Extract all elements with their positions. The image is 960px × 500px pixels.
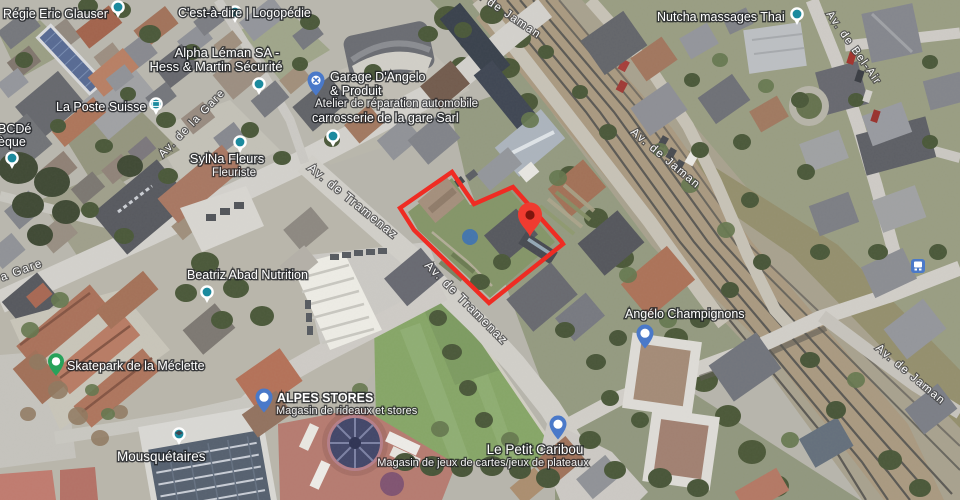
svg-text:& Produit: & Produit bbox=[330, 84, 382, 98]
svg-text:Atelier de réparation automobi: Atelier de réparation automobile bbox=[315, 98, 478, 110]
svg-text:C'est-à-dire | Logopédie: C'est-à-dire | Logopédie bbox=[178, 6, 311, 20]
svg-text:Le Petit Caribou: Le Petit Caribou bbox=[487, 442, 584, 457]
svg-text:èque: èque bbox=[0, 135, 26, 149]
svg-text:Nutcha massages Thai: Nutcha massages Thai bbox=[657, 10, 785, 24]
svg-text:Magasin de jeux de cartes/jeux: Magasin de jeux de cartes/jeux de platea… bbox=[377, 457, 589, 469]
svg-text:Garage D'Angelo: Garage D'Angelo bbox=[330, 70, 426, 84]
svg-text:Régie Eric Glauser: Régie Eric Glauser bbox=[3, 7, 108, 21]
svg-text:Alpha Léman SA -: Alpha Léman SA - bbox=[175, 45, 280, 60]
svg-text:ALPES STORES: ALPES STORES bbox=[277, 391, 373, 405]
svg-text:Angélo Champignons: Angélo Champignons bbox=[625, 307, 745, 321]
svg-text:Mousquétaires: Mousquétaires bbox=[117, 449, 206, 464]
svg-text:Hess & Martin Sécurité: Hess & Martin Sécurité bbox=[150, 59, 283, 74]
svg-text:Skatepark de la Méclette: Skatepark de la Méclette bbox=[67, 359, 205, 373]
svg-text:carrosserie de la gare Sarl: carrosserie de la gare Sarl bbox=[312, 111, 459, 125]
svg-text:BCDé: BCDé bbox=[0, 122, 31, 136]
svg-text:Beatriz Abad Nutrition: Beatriz Abad Nutrition bbox=[187, 268, 308, 282]
svg-text:La Poste Suisse: La Poste Suisse bbox=[56, 100, 146, 114]
svg-text:Magasin de rideaux et stores: Magasin de rideaux et stores bbox=[276, 405, 418, 417]
svg-text:Fleuriste: Fleuriste bbox=[212, 167, 256, 179]
svg-text:SylNa Fleurs: SylNa Fleurs bbox=[190, 151, 265, 166]
